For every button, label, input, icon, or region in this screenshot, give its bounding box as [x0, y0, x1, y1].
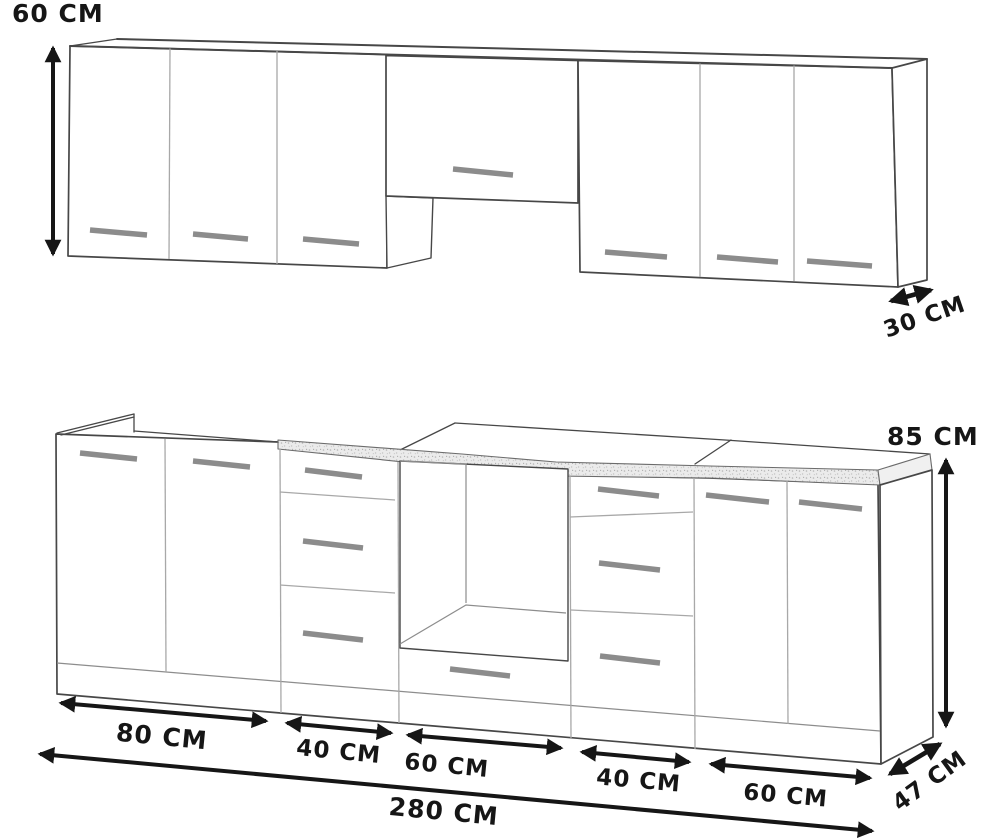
base-width-label: 80 CM — [115, 718, 209, 756]
base-depth-label: 47 CM — [888, 746, 972, 817]
base-width-label: 60 CM — [403, 749, 490, 783]
wall-hood-cabinet-front — [386, 56, 578, 204]
base-width-arrow — [711, 764, 870, 778]
diagram-canvas: 60 CM 30 CM 85 CM 47 CM 80 CM 40 CM 60 C… — [0, 0, 984, 840]
wall-cabinet-row — [68, 39, 927, 287]
base-total-width-label: 280 CM — [388, 792, 500, 831]
base-width-label: 60 CM — [742, 779, 829, 812]
base-cabinet-row — [56, 414, 933, 764]
wall-height-label: 60 CM — [12, 0, 104, 28]
wall-right-gable — [892, 59, 927, 287]
kitchen-dimension-diagram: 60 CM 30 CM 85 CM 47 CM 80 CM 40 CM 60 C… — [0, 0, 984, 840]
wall-left-cabinet-side-panel — [386, 196, 433, 268]
base-right-gable — [880, 470, 933, 764]
wall-depth-arrow — [891, 290, 931, 301]
base-height-label: 85 CM — [887, 422, 979, 451]
base-width-arrow — [408, 735, 561, 748]
base-width-arrow — [287, 723, 391, 733]
base-width-label: 40 CM — [295, 735, 382, 769]
base-width-label: 40 CM — [595, 764, 682, 797]
oven-cavity — [400, 461, 568, 661]
base-width-arrow — [582, 752, 689, 762]
wall-top-left-edge — [70, 39, 117, 46]
